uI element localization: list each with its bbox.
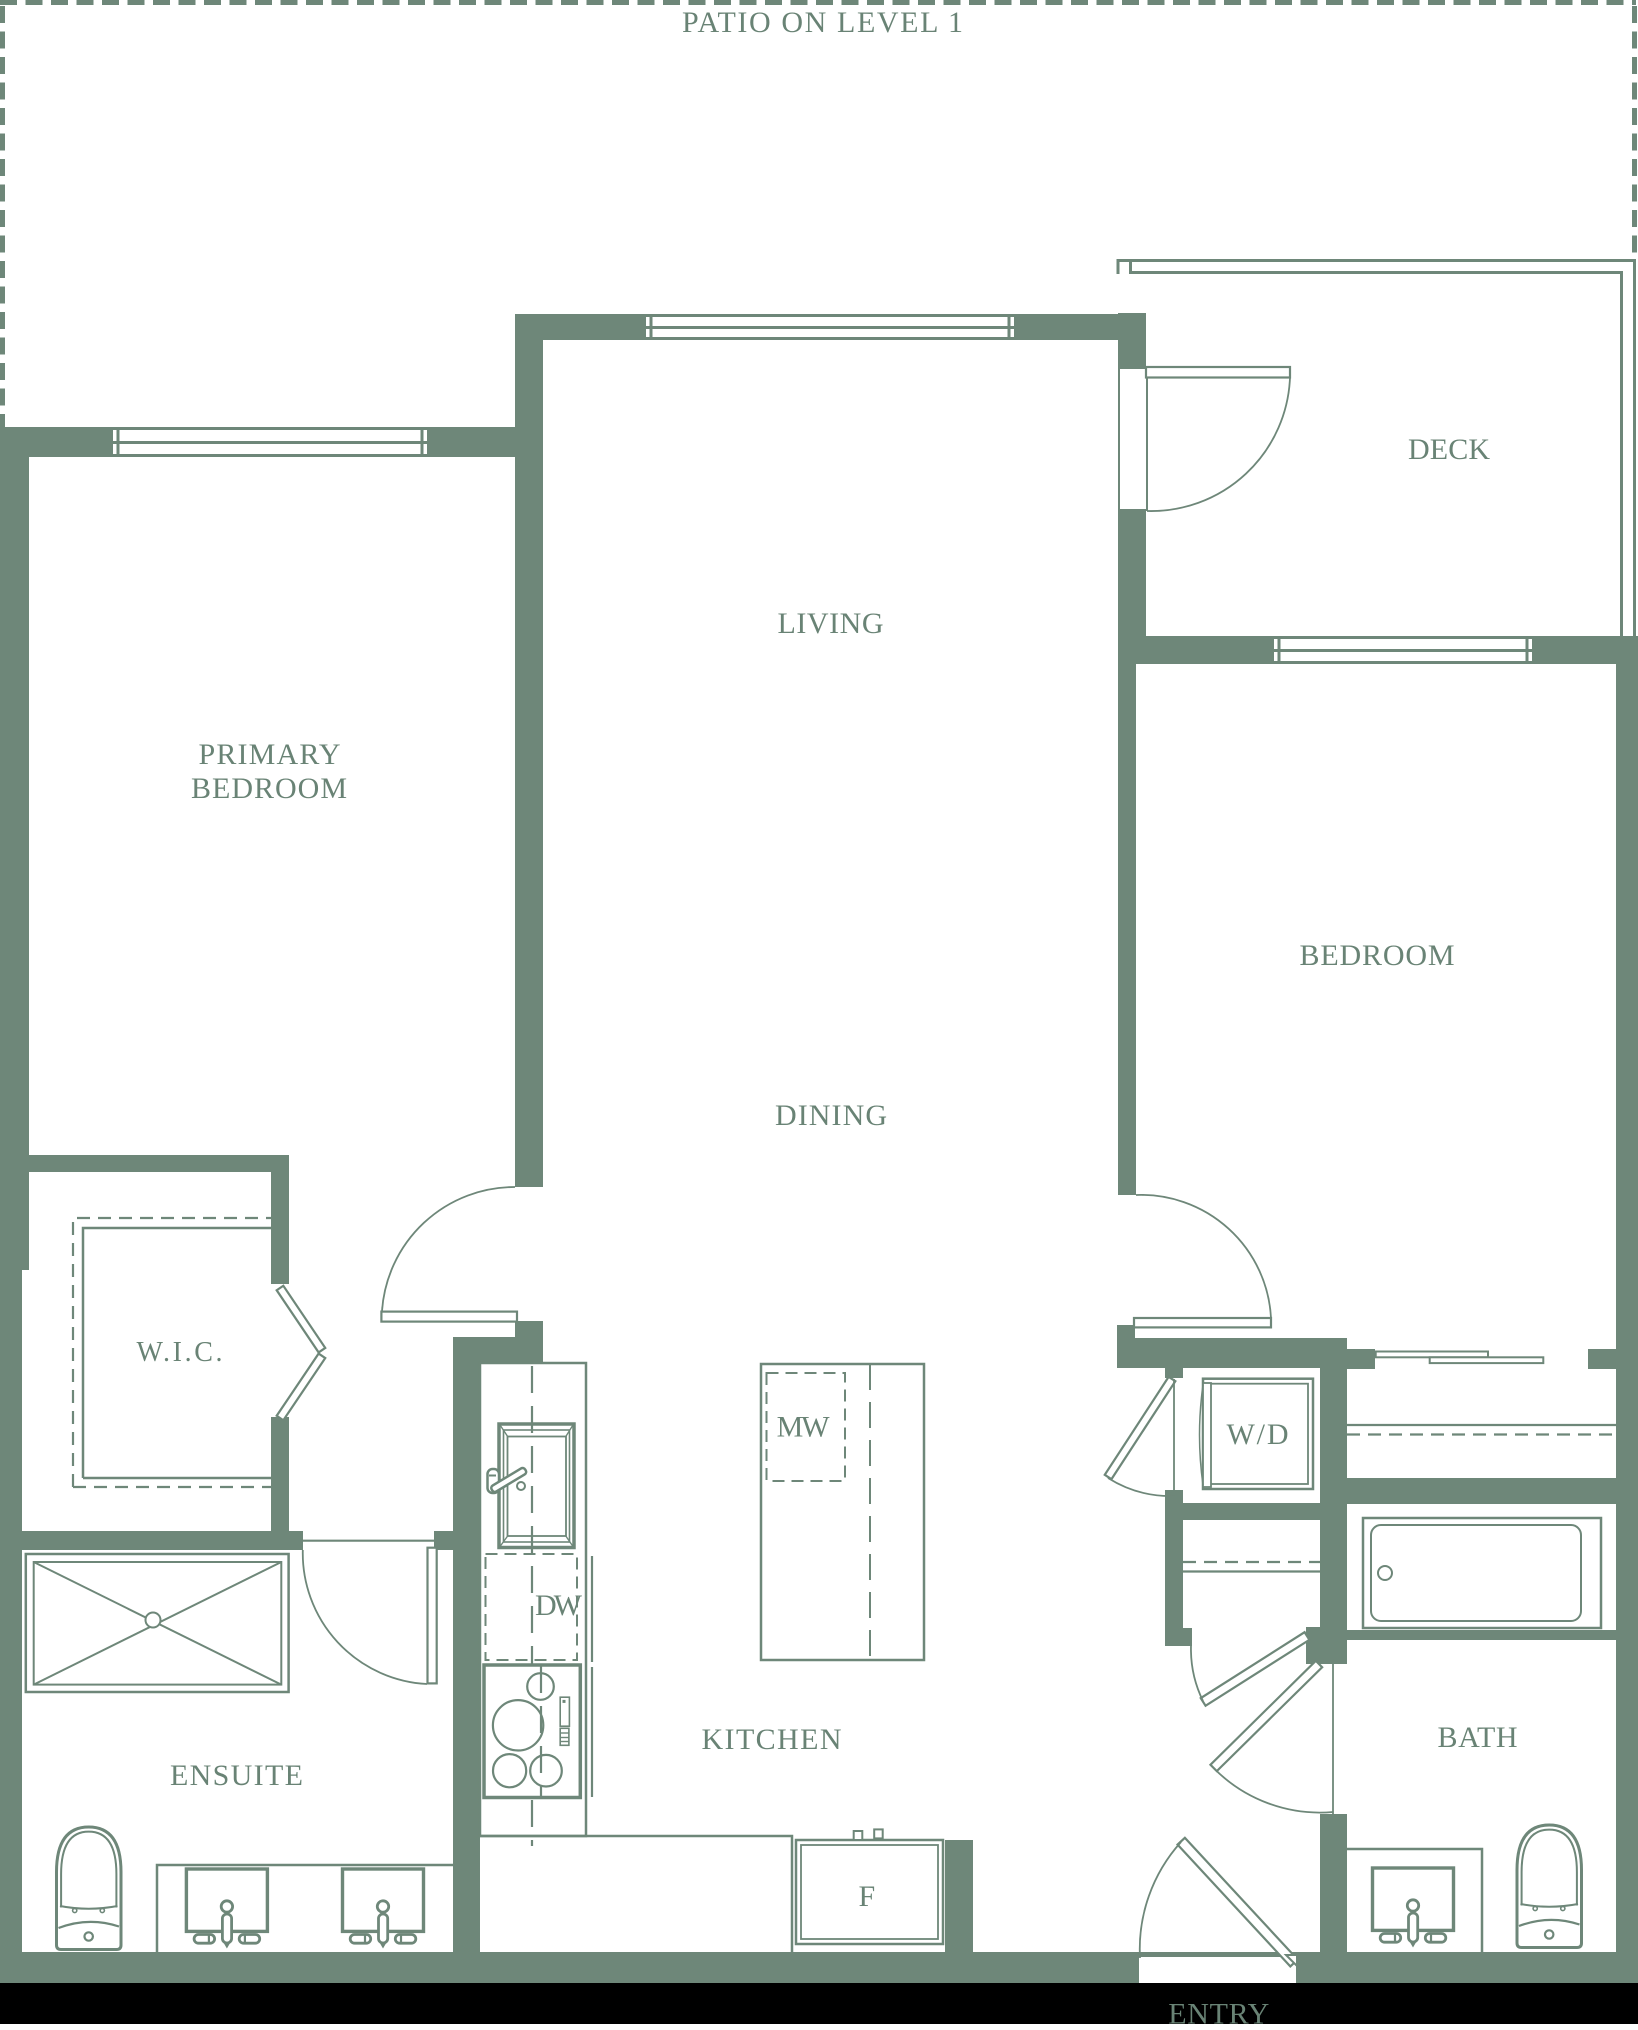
svg-text:MW: MW	[777, 1411, 831, 1444]
svg-text:DECK: DECK	[1408, 433, 1490, 466]
svg-text:BEDROOM: BEDROOM	[191, 772, 347, 805]
svg-text:W/D: W/D	[1227, 1418, 1289, 1451]
svg-text:ENTRY: ENTRY	[1168, 1998, 1269, 2030]
svg-text:PATIO ON LEVEL 1: PATIO ON LEVEL 1	[682, 6, 963, 39]
svg-text:PRIMARY: PRIMARY	[199, 738, 341, 771]
svg-text:ENSUITE: ENSUITE	[170, 1759, 303, 1792]
svg-text:KITCHEN: KITCHEN	[702, 1723, 842, 1756]
svg-text:DW: DW	[535, 1589, 583, 1622]
svg-text:BEDROOM: BEDROOM	[1300, 939, 1455, 972]
svg-text:LIVING: LIVING	[778, 607, 884, 640]
svg-text:F: F	[859, 1880, 876, 1913]
svg-text:W.I.C.: W.I.C.	[137, 1337, 223, 1368]
svg-text:DINING: DINING	[775, 1099, 887, 1132]
svg-text:BATH: BATH	[1438, 1721, 1518, 1754]
